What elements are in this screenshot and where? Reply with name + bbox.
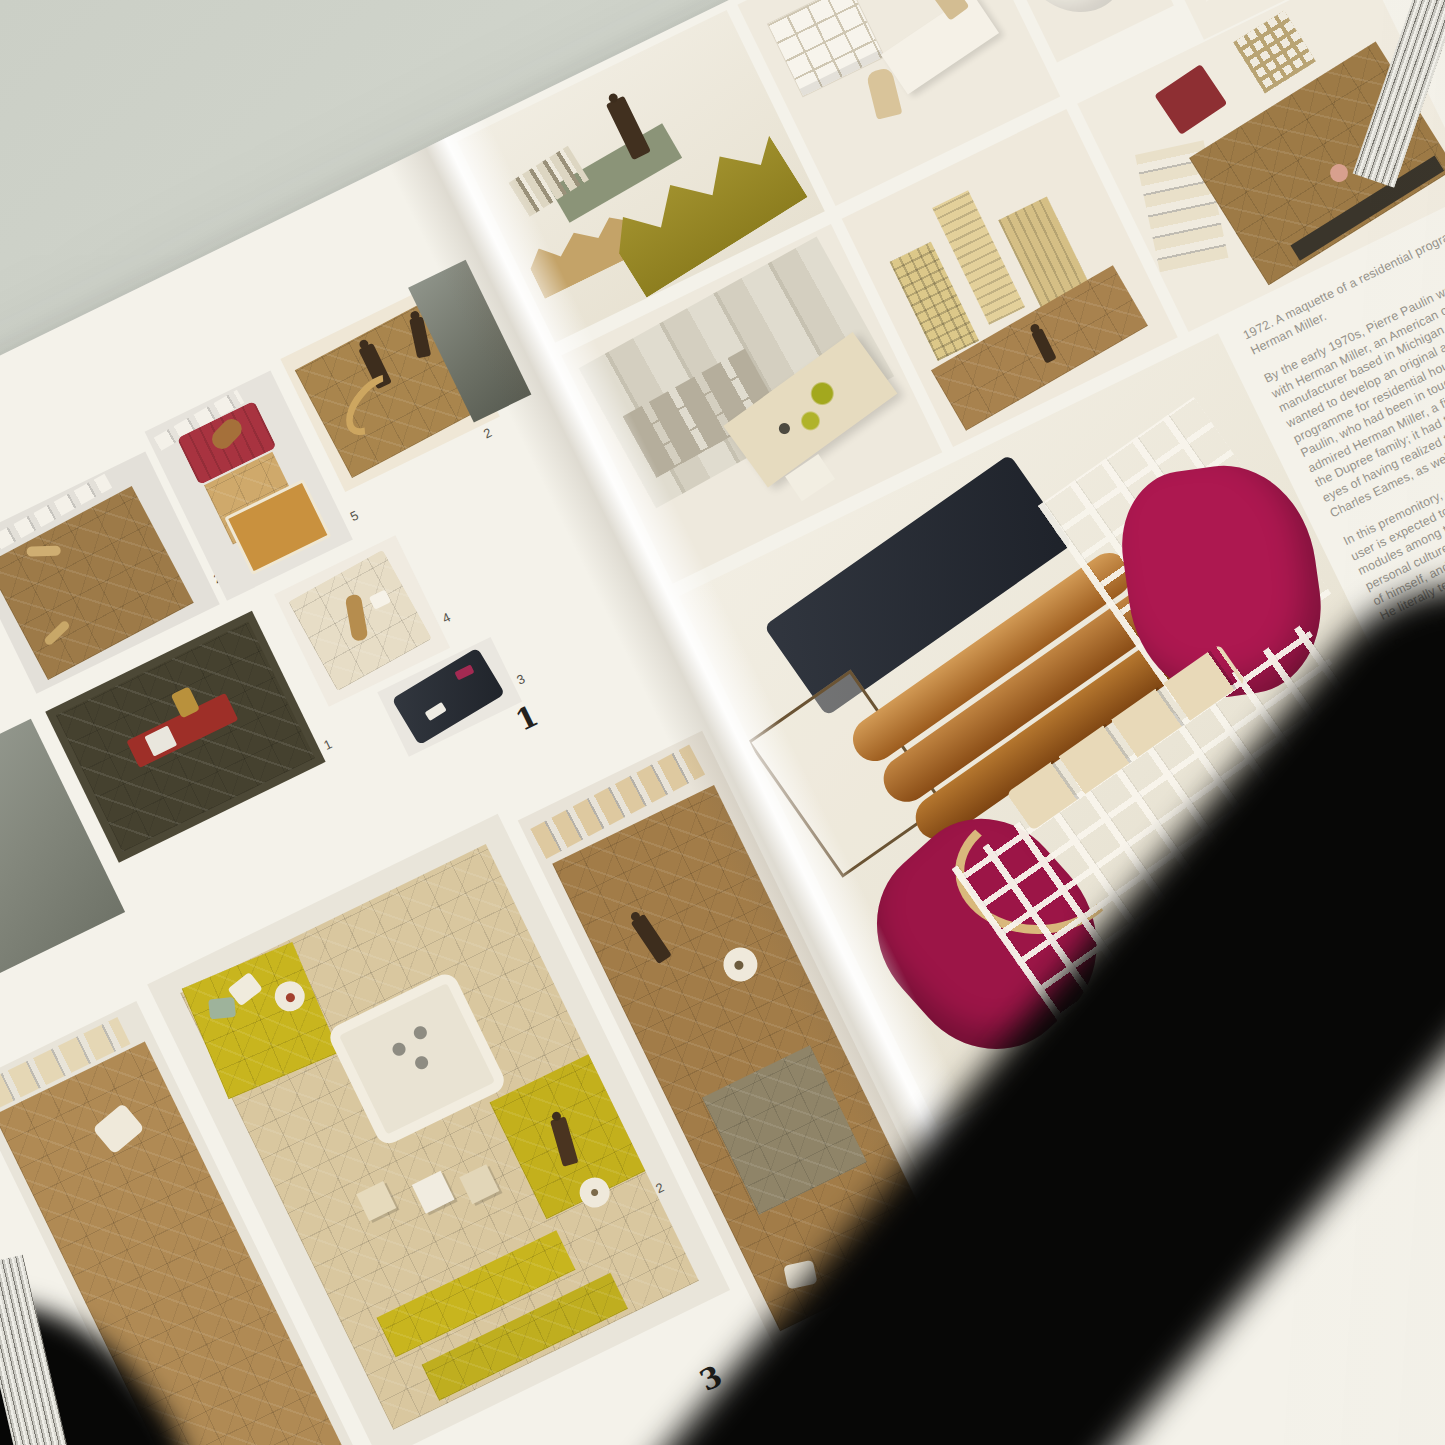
figure-label-navy-sofa: 3: [514, 671, 527, 688]
figure-label-figures-mat: 2: [481, 425, 494, 442]
white-table: [881, 0, 999, 94]
green-cushions: [208, 997, 236, 1020]
tan-strap-piece: [27, 546, 61, 557]
plate-number-1: 1: [510, 698, 543, 737]
shelf-grid: [1233, 11, 1316, 94]
figure-label-olive-mat: 1: [321, 736, 334, 753]
figure-label-red-chair: 5: [348, 508, 361, 525]
figure-label-cream-table: 4: [440, 610, 453, 627]
red-cabinet: [1154, 64, 1227, 135]
